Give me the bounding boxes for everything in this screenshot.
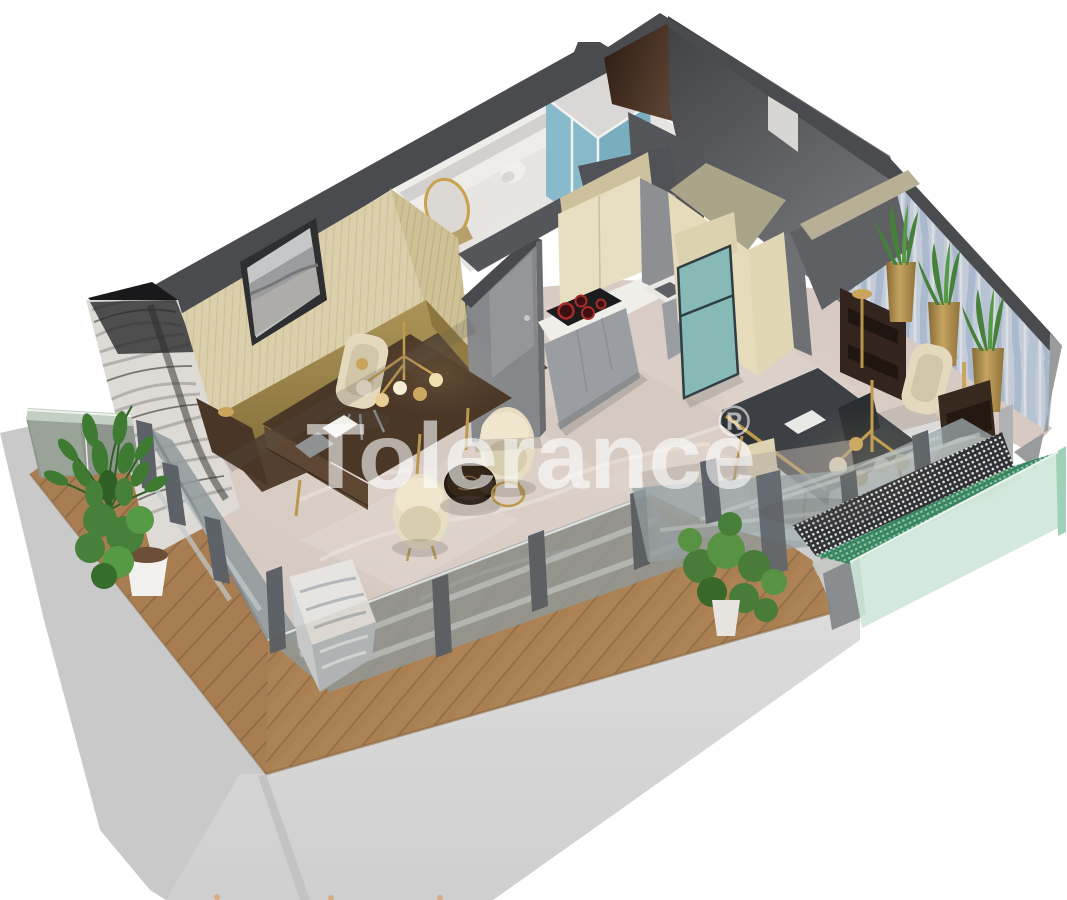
svg-text:Tolerance: Tolerance (306, 404, 756, 508)
svg-text:®: ® (718, 397, 750, 446)
